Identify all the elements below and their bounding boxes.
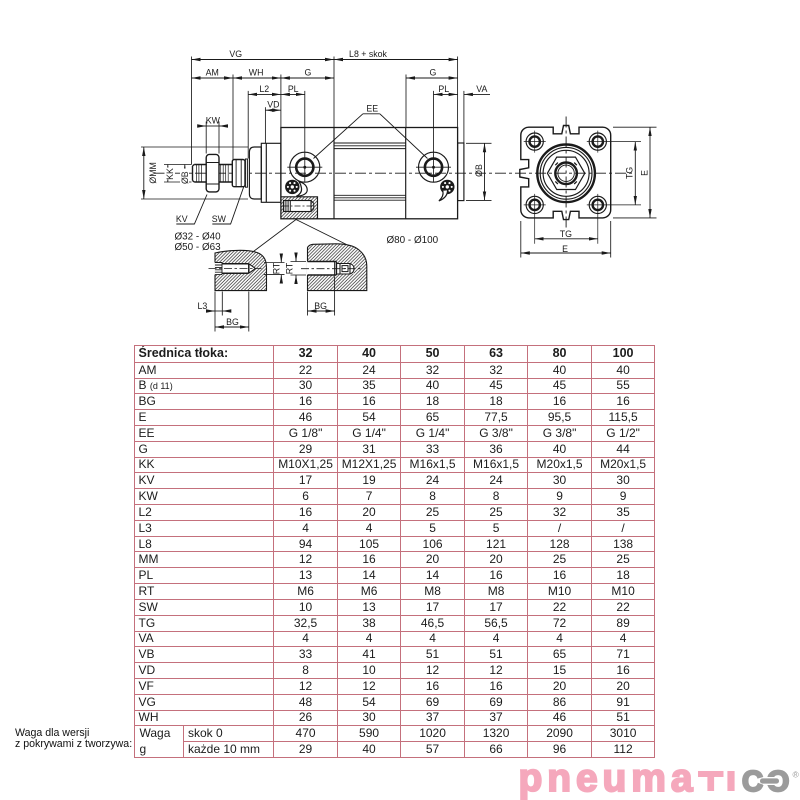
- svg-text:BG: BG: [226, 317, 239, 327]
- svg-text:E: E: [562, 244, 568, 254]
- svg-text:EE: EE: [366, 104, 378, 114]
- svg-text:RT: RT: [285, 262, 295, 274]
- svg-text:BG: BG: [314, 301, 327, 311]
- svg-text:VA: VA: [476, 84, 487, 94]
- svg-text:E: E: [640, 170, 650, 176]
- svg-text:C: C: [742, 766, 763, 798]
- svg-text:ØB: ØB: [474, 164, 484, 177]
- svg-text:VD: VD: [267, 100, 279, 110]
- svg-text:RT: RT: [272, 262, 282, 274]
- svg-text:pneuma: pneuma: [519, 760, 698, 800]
- svg-text:TG: TG: [625, 167, 635, 179]
- svg-text:PL: PL: [288, 84, 299, 94]
- svg-text:®: ®: [793, 770, 800, 780]
- svg-text:KW: KW: [206, 116, 221, 126]
- svg-text:L3: L3: [198, 301, 208, 311]
- svg-text:KV: KV: [176, 214, 188, 224]
- svg-text:G: G: [304, 68, 311, 78]
- svg-text:PL: PL: [438, 84, 449, 94]
- svg-text:WH: WH: [249, 68, 264, 78]
- svg-text:G: G: [429, 68, 436, 78]
- svg-text:Ø50 - Ø63: Ø50 - Ø63: [175, 242, 222, 253]
- svg-text:TG: TG: [560, 229, 572, 239]
- svg-text:ØB: ØB: [180, 171, 190, 184]
- svg-text:L8 + skok: L8 + skok: [349, 49, 387, 59]
- svg-text:L2: L2: [259, 84, 269, 94]
- svg-text:KK: KK: [165, 168, 175, 180]
- svg-text:Ø80 - Ø100: Ø80 - Ø100: [387, 235, 439, 246]
- svg-text:SW: SW: [212, 214, 227, 224]
- svg-text:VG: VG: [229, 49, 242, 59]
- svg-text:AM: AM: [206, 68, 219, 78]
- svg-text:ØMM: ØMM: [148, 162, 158, 184]
